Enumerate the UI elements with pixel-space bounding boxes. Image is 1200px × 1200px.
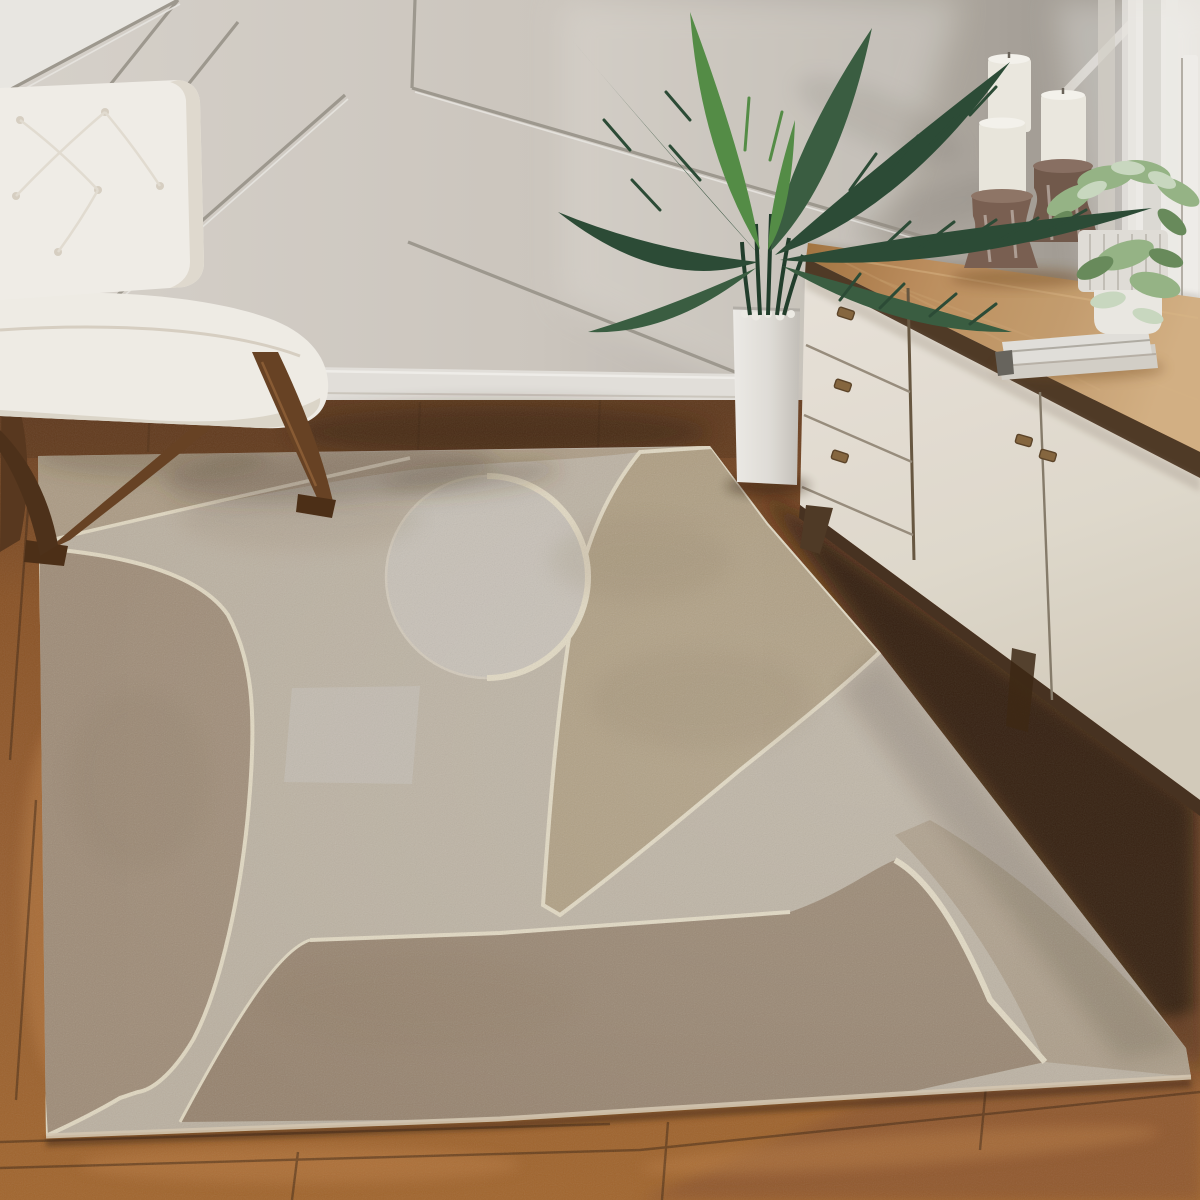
scene <box>0 0 1200 1200</box>
vignette <box>0 0 1200 1200</box>
photo-canvas <box>0 0 1200 1200</box>
